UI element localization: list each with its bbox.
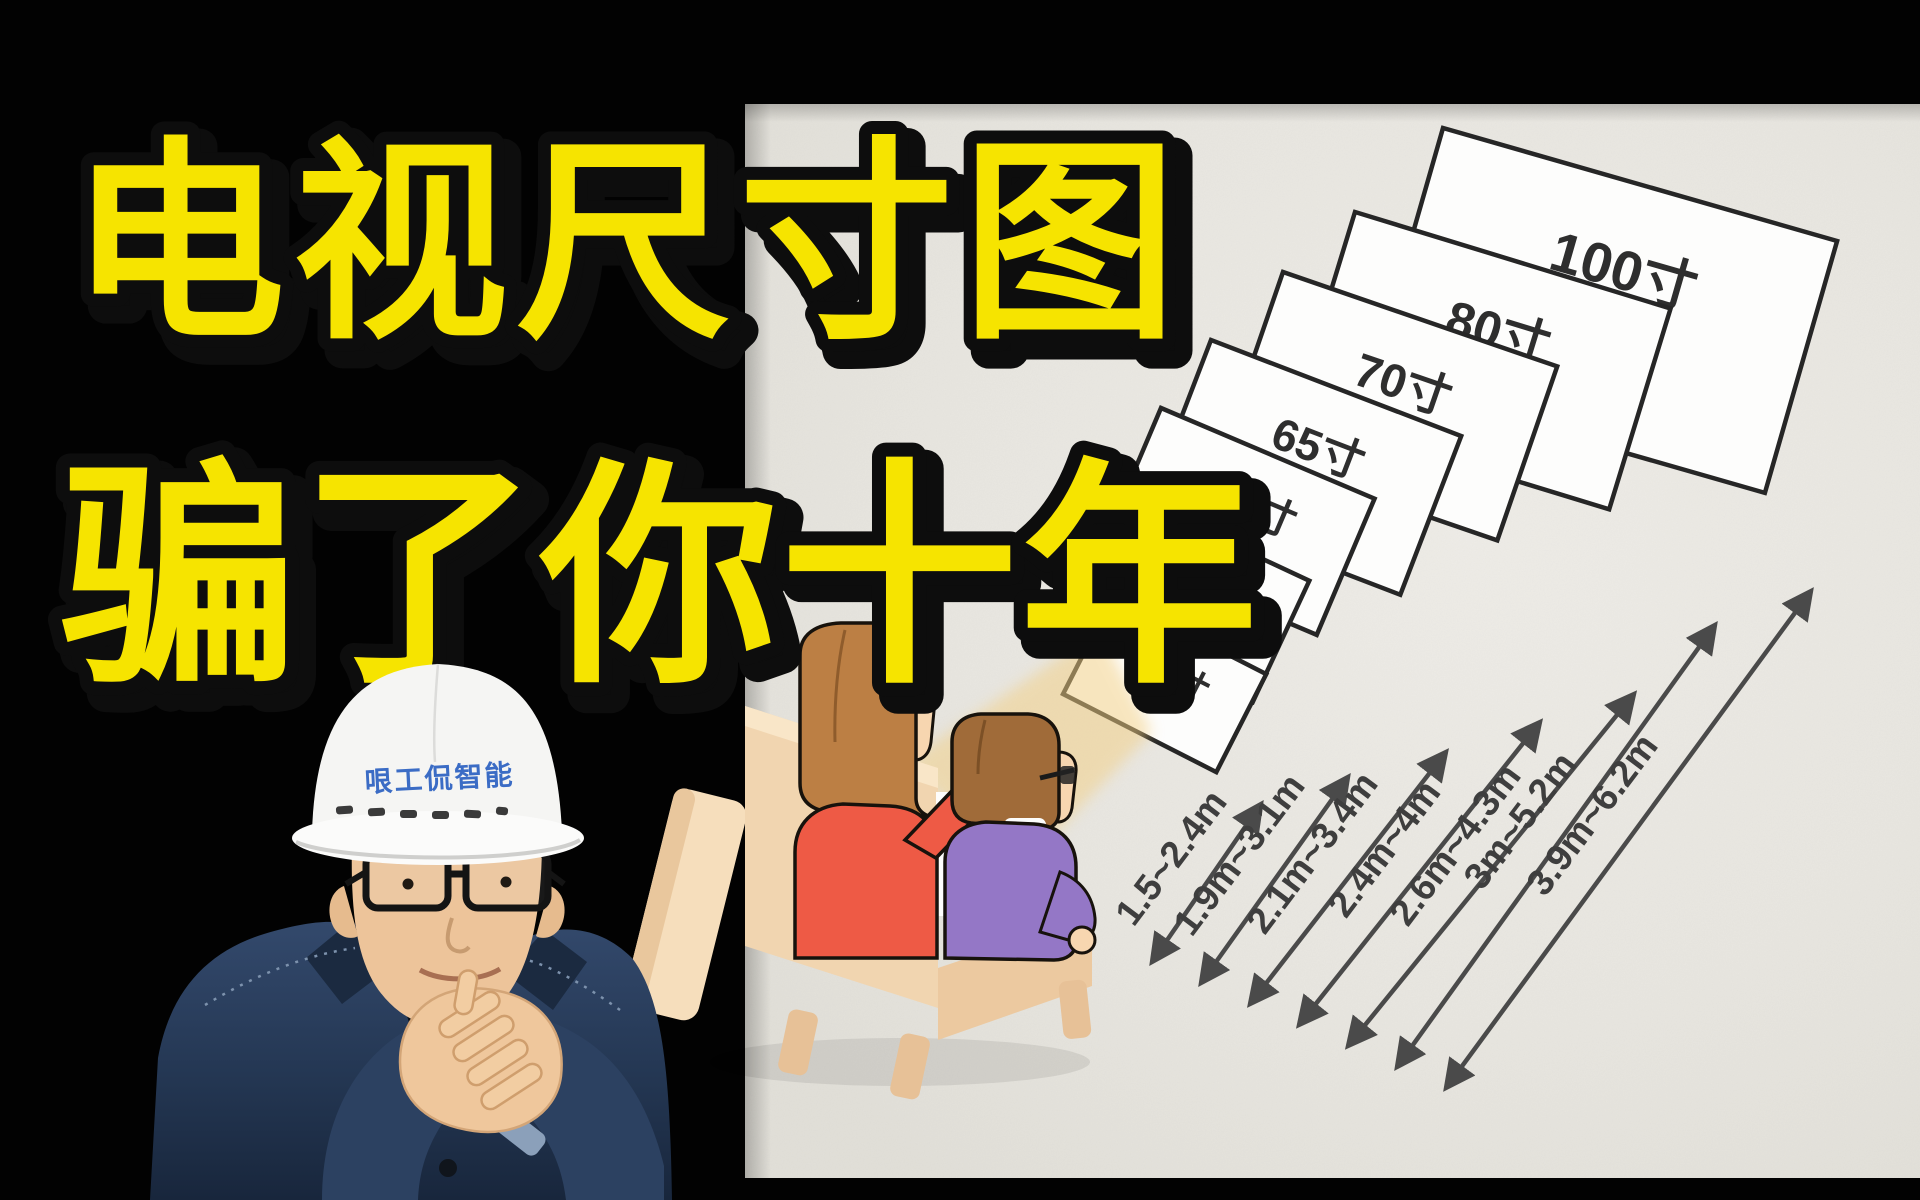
man-hand [1069, 927, 1095, 953]
title-line1: 电视尺寸图 [70, 123, 1185, 364]
title-line2: 骗了你十年 [60, 446, 1260, 711]
eye-left [403, 879, 414, 890]
man-hair [952, 714, 1059, 829]
eye-right [501, 877, 512, 888]
thumbnail-stage: 100寸 80寸 70寸 65寸 55寸 50寸 40寸 [0, 0, 1920, 1200]
paper-top-shadow [745, 104, 1920, 122]
thumbnail-canvas: 100寸 80寸 70寸 65寸 55寸 50寸 40寸 [0, 0, 1920, 1200]
man-glasses-lens [1060, 766, 1075, 784]
jacket-button [439, 1159, 457, 1177]
